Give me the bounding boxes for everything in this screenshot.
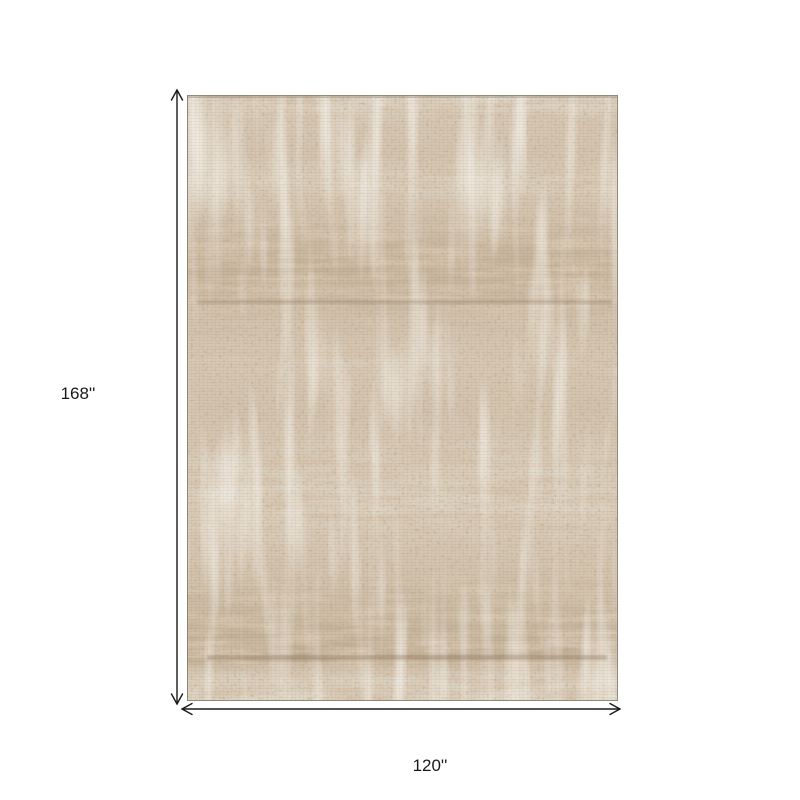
height-dimension-label: 168'' — [48, 384, 108, 404]
height-dimension-arrow — [168, 86, 186, 708]
width-dimension-label: 120'' — [400, 756, 460, 776]
rug-texture — [187, 95, 618, 701]
product-dimension-image: 168'' 120'' — [0, 0, 800, 800]
width-dimension-arrow — [178, 700, 624, 718]
rug-product-image — [187, 95, 618, 701]
